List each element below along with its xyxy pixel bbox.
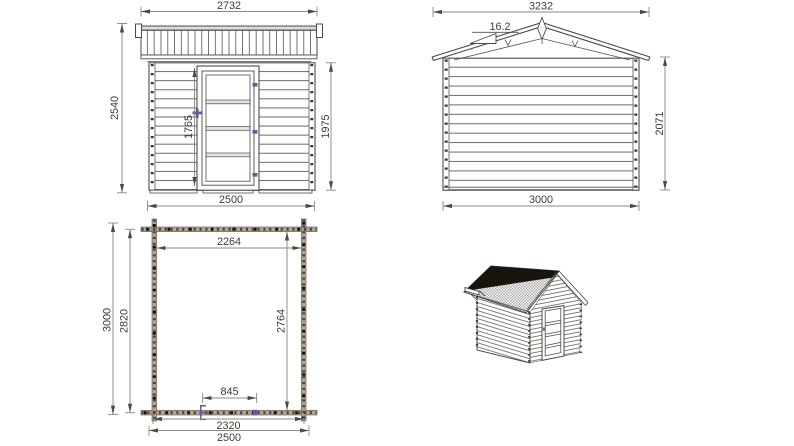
iso-view xyxy=(464,266,588,363)
dim-plan-outer-depth: 3000 xyxy=(102,308,114,332)
dim-front-overall-height: 2540 xyxy=(109,96,121,120)
door-rail xyxy=(206,153,250,157)
door-hinge xyxy=(253,173,258,177)
gable-wall xyxy=(443,58,639,190)
dim-plan-inner-depth: 2764 xyxy=(276,309,288,333)
front-roof-fascia xyxy=(136,24,323,62)
front-elevation-view: 2732 2540 1975 1765 2500 xyxy=(109,0,336,211)
door-rail xyxy=(206,100,250,104)
dim-gable-wall-width: 3000 xyxy=(529,194,553,206)
door-hinge xyxy=(253,83,258,87)
slope-triangle-icon xyxy=(470,34,496,44)
technical-drawing-sheet: 2732 2540 1975 1765 2500 xyxy=(0,0,794,446)
gable-elevation-view: 16.2 3232 2071 3000 xyxy=(432,1,670,212)
dim-gable-roof-width: 3232 xyxy=(529,1,553,13)
dim-gable-roof-pitch: 16.2 xyxy=(489,21,510,33)
door-jamb-symbol-right xyxy=(253,410,258,415)
roof-finial xyxy=(538,18,547,40)
roof-beam-end-right xyxy=(317,24,323,38)
gable-pitch-symbol: 16.2 xyxy=(470,21,519,44)
dim-front-wall-width: 2500 xyxy=(219,194,243,206)
dim-front-wall-height: 1975 xyxy=(320,114,332,138)
dim-plan-inner-width: 2264 xyxy=(217,236,241,248)
dim-plan-door-width: 845 xyxy=(220,386,238,398)
dim-gable-wall-height: 2071 xyxy=(654,111,666,135)
floor-plan-view: 2264 2764 2820 3000 845 2320 2500 xyxy=(102,219,318,444)
dim-front-door-height: 1765 xyxy=(183,115,195,139)
dim-plan-wall-depth: 2820 xyxy=(119,309,131,333)
iso-door xyxy=(542,306,564,361)
purlin-end xyxy=(505,40,511,46)
drawing-canvas: 2732 2540 1975 1765 2500 xyxy=(0,0,794,446)
iso-door-handle xyxy=(543,328,545,331)
front-door xyxy=(193,66,260,190)
purlin-end xyxy=(572,41,578,47)
dim-plan-outer-width: 2500 xyxy=(217,432,241,444)
gable-roof xyxy=(432,18,650,61)
door-hinge xyxy=(253,130,258,134)
door-handle xyxy=(196,109,199,118)
dim-front-roof-width: 2732 xyxy=(217,0,241,12)
door-rail xyxy=(206,127,250,131)
roof-beam-end-left xyxy=(136,24,142,38)
